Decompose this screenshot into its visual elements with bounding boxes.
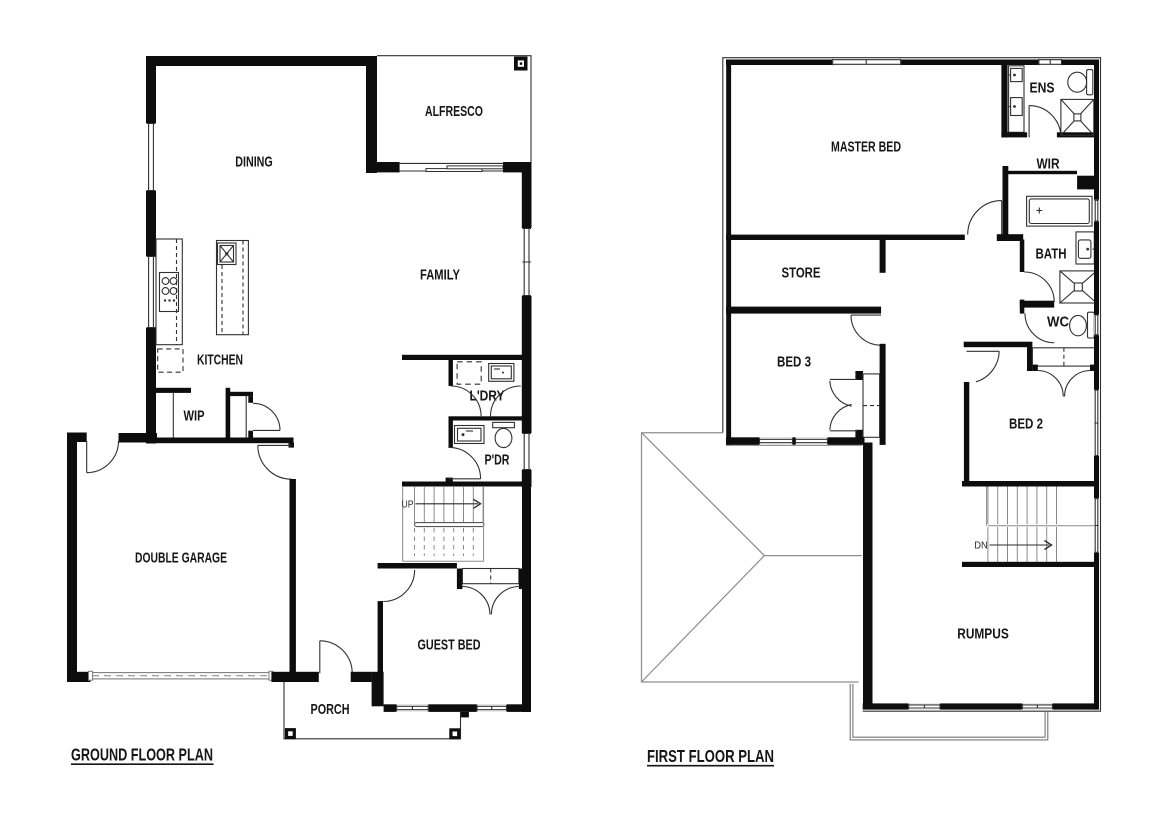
- svg-text:ALFRESCO: ALFRESCO: [425, 104, 483, 120]
- svg-text:GROUND FLOOR PLAN: GROUND FLOOR PLAN: [71, 745, 213, 765]
- svg-text:UP: UP: [402, 499, 414, 511]
- svg-text:STORE: STORE: [782, 266, 821, 282]
- svg-text:FAMILY: FAMILY: [420, 268, 460, 284]
- svg-text:WIR: WIR: [1037, 157, 1060, 173]
- svg-text:ENS: ENS: [1030, 81, 1055, 97]
- svg-text:BED 3: BED 3: [777, 355, 811, 371]
- svg-text:RUMPUS: RUMPUS: [957, 627, 1009, 643]
- svg-text:BED 2: BED 2: [1009, 417, 1043, 433]
- svg-text:WC: WC: [1047, 315, 1069, 331]
- svg-text:FIRST FLOOR PLAN: FIRST FLOOR PLAN: [647, 746, 774, 766]
- svg-text:MASTER BED: MASTER BED: [831, 140, 901, 156]
- svg-text:KITCHEN: KITCHEN: [197, 353, 243, 369]
- svg-text:DN: DN: [974, 540, 988, 552]
- svg-text:DINING: DINING: [235, 155, 273, 171]
- svg-text:P'DR: P'DR: [485, 453, 510, 469]
- svg-text:GUEST BED: GUEST BED: [418, 638, 481, 654]
- svg-text:BATH: BATH: [1036, 247, 1067, 263]
- svg-text:L'DRY: L'DRY: [470, 389, 505, 405]
- svg-text:PORCH: PORCH: [311, 702, 350, 718]
- svg-text:WIP: WIP: [184, 409, 205, 425]
- svg-text:DOUBLE GARAGE: DOUBLE GARAGE: [135, 551, 227, 567]
